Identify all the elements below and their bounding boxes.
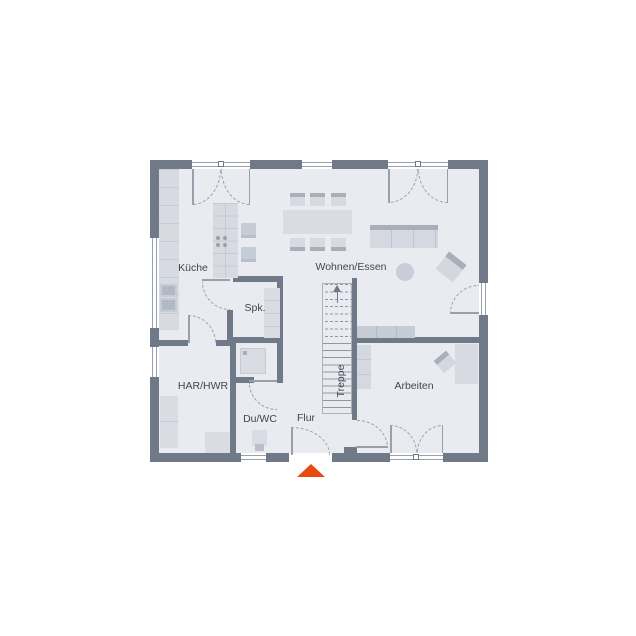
rug [396, 263, 414, 281]
oven-appliance [160, 284, 177, 297]
window-kitchen-left [150, 238, 159, 328]
door-leaf [202, 279, 230, 281]
wall-kitchen-utility-a [159, 340, 188, 346]
toilet-base [255, 444, 264, 451]
dining-chair [290, 193, 305, 206]
terrace-door-frame [479, 283, 488, 315]
room-label-kitchen: Küche [178, 262, 208, 274]
sofa [370, 225, 438, 248]
fridge-appliance [160, 298, 177, 312]
wall-cabinet [241, 247, 256, 262]
dining-table [283, 210, 352, 234]
room-label-office: Arbeiten [394, 380, 433, 392]
dining-chair [310, 193, 325, 206]
dining-chair [290, 238, 305, 251]
sideboard [357, 326, 415, 338]
floor-plan: Küche Wohnen/Essen Spk. HAR/HWR Du/WC Fl… [0, 0, 636, 636]
room-label-wc: Du/WC [243, 413, 277, 425]
washer-dryer [160, 396, 178, 448]
cooktop-burner-icon [216, 236, 220, 240]
window-utility-left [150, 347, 159, 377]
wall-pantry-top [233, 276, 283, 282]
window-wc-bottom [241, 453, 266, 462]
wall-cabinet [241, 223, 256, 238]
entrance-marker-icon [297, 464, 325, 477]
shower-drain-icon [243, 351, 247, 355]
dining-chair [310, 238, 325, 251]
door-handle-icon [218, 161, 224, 167]
room-label-pantry: Spk. [244, 302, 265, 314]
wall-office-door-stub [344, 447, 357, 453]
door-handle-icon [415, 161, 421, 167]
stairs-arrow-stem [337, 291, 338, 303]
dining-chair [331, 193, 346, 206]
desk-chair-seat [434, 351, 457, 374]
cooktop-burner-icon [223, 243, 227, 247]
cooktop-burner-icon [223, 236, 227, 240]
wall-utility-wc [230, 343, 236, 453]
pantry-shelf [264, 288, 280, 338]
window-top-center [302, 160, 332, 169]
kitchen-island [213, 203, 238, 278]
room-label-hall: Flur [297, 412, 315, 424]
utility-cabinet [205, 432, 230, 453]
door-handle-icon [413, 454, 419, 460]
room-label-utility: HAR/HWR [178, 380, 228, 392]
office-shelf [357, 345, 371, 389]
door-leaf [249, 380, 277, 382]
dining-chair [331, 238, 346, 251]
cooktop-burner-icon [216, 243, 220, 247]
room-label-living: Wohnen/Essen [315, 261, 386, 273]
room-label-stairs: Treppe [335, 365, 347, 398]
